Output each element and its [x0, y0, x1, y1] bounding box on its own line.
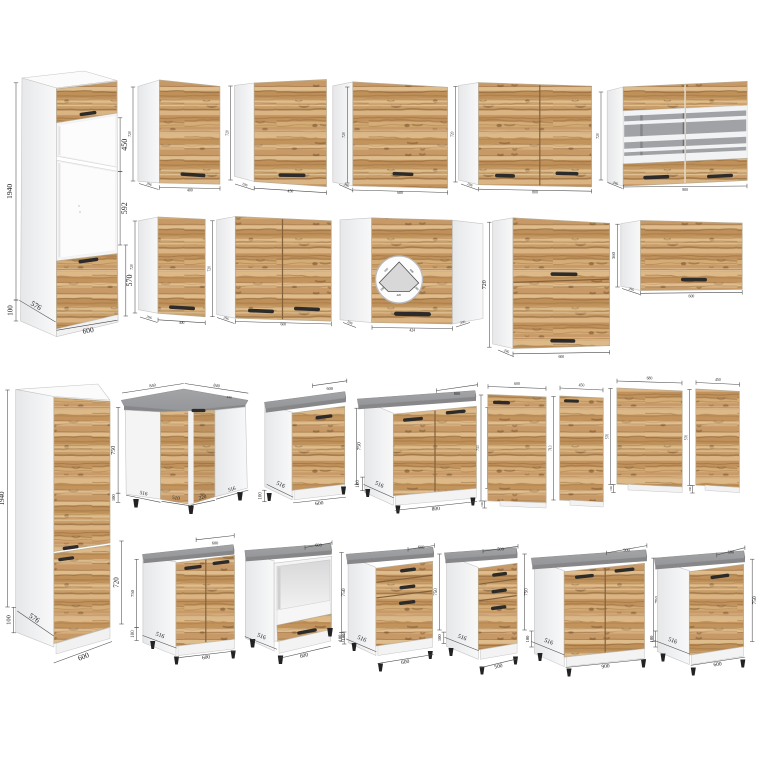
svg-text:424: 424 [409, 329, 415, 333]
svg-text:720: 720 [128, 131, 132, 137]
svg-text:750: 750 [111, 446, 117, 455]
svg-text:750: 750 [434, 588, 439, 596]
svg-text:680: 680 [647, 377, 653, 381]
svg-text:750: 750 [525, 588, 530, 596]
svg-text:600: 600 [689, 294, 695, 298]
svg-text:450: 450 [120, 139, 129, 151]
svg-text:713: 713 [549, 445, 553, 451]
svg-text:720: 720 [207, 266, 211, 272]
svg-text:500: 500 [497, 546, 503, 551]
svg-text:600: 600 [326, 386, 332, 391]
svg-text:510: 510 [172, 495, 181, 502]
svg-text:592: 592 [120, 202, 129, 214]
svg-text:600: 600 [82, 325, 95, 336]
svg-text:600: 600 [728, 550, 734, 555]
svg-text:100: 100 [688, 486, 692, 491]
svg-text:713: 713 [476, 445, 480, 451]
svg-text:400: 400 [187, 189, 193, 193]
svg-text:600: 600 [514, 382, 520, 386]
svg-text:570: 570 [125, 275, 134, 287]
svg-text:100: 100 [525, 635, 530, 643]
svg-text:840: 840 [149, 382, 156, 388]
svg-text:600: 600 [212, 540, 218, 545]
svg-text:720: 720 [596, 133, 600, 139]
svg-text:100: 100 [337, 634, 342, 642]
svg-text:720: 720 [342, 132, 346, 138]
svg-text:800: 800 [431, 506, 440, 513]
svg-text:750: 750 [356, 442, 362, 451]
svg-text:720: 720 [450, 131, 454, 137]
svg-text:570: 570 [606, 434, 610, 440]
svg-text:570: 570 [685, 435, 689, 441]
svg-text:720: 720 [130, 264, 134, 270]
svg-text:600: 600 [713, 661, 722, 668]
svg-text:100: 100 [609, 486, 613, 491]
svg-text:840: 840 [213, 382, 220, 388]
svg-text:720: 720 [225, 130, 229, 136]
svg-text:900: 900 [623, 548, 629, 553]
svg-text:440: 440 [226, 395, 232, 400]
svg-text:450: 450 [579, 384, 585, 388]
svg-text:450: 450 [288, 189, 294, 193]
svg-text:720: 720 [482, 280, 488, 289]
svg-text:420: 420 [397, 293, 402, 297]
svg-text:100: 100 [111, 494, 116, 502]
svg-text:600: 600 [418, 544, 424, 549]
svg-text:100: 100 [6, 615, 13, 625]
svg-text:100: 100 [356, 480, 361, 488]
svg-text:100: 100 [649, 635, 654, 643]
svg-text:100: 100 [131, 630, 136, 638]
svg-text:600: 600 [280, 323, 286, 327]
svg-text:600: 600 [202, 654, 211, 661]
svg-text:750: 750 [752, 596, 758, 605]
svg-text:100: 100 [480, 502, 484, 507]
svg-text:720: 720 [113, 577, 121, 588]
svg-text:1940: 1940 [5, 184, 14, 199]
svg-text:450: 450 [715, 378, 721, 382]
svg-text:300: 300 [179, 321, 185, 325]
svg-text:100: 100 [7, 305, 15, 316]
svg-text:360: 360 [611, 251, 616, 259]
svg-text:600: 600 [558, 355, 564, 359]
svg-text:100: 100 [258, 492, 263, 500]
svg-text:600: 600 [315, 543, 321, 548]
svg-text:600: 600 [397, 191, 403, 195]
svg-text:750: 750 [341, 588, 347, 597]
svg-text:800: 800 [682, 188, 688, 192]
svg-text:800: 800 [454, 391, 460, 396]
svg-text:750: 750 [130, 589, 135, 597]
svg-text:600: 600 [315, 500, 324, 507]
svg-text:100: 100 [437, 634, 442, 642]
svg-text:800: 800 [532, 190, 538, 194]
svg-text:900: 900 [601, 663, 610, 670]
svg-text:1940: 1940 [0, 491, 6, 506]
